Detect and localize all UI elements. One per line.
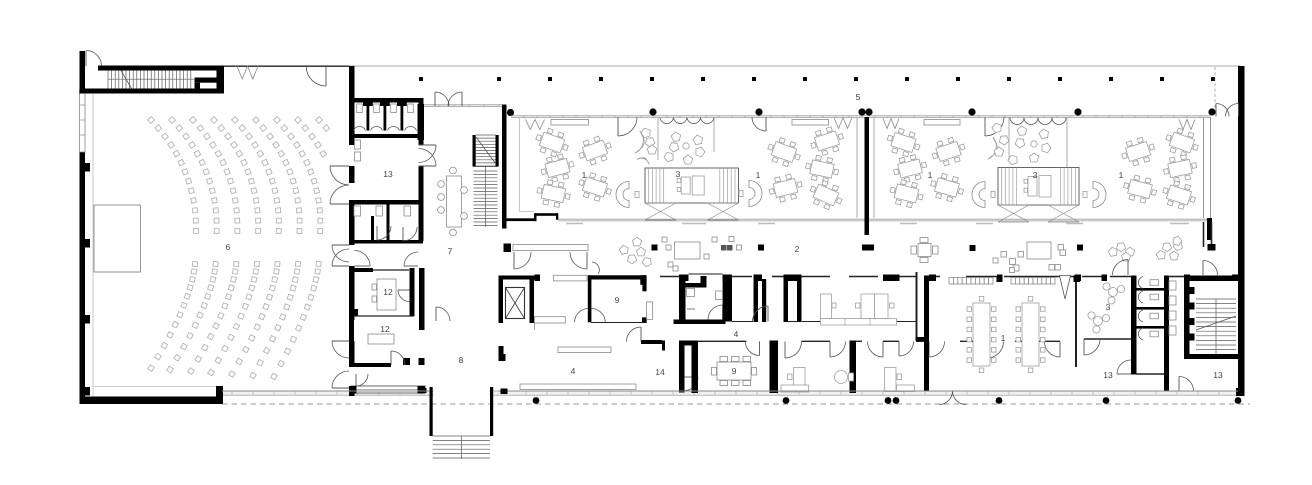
svg-text:8: 8 <box>459 355 464 365</box>
svg-text:6: 6 <box>226 242 231 252</box>
svg-text:3: 3 <box>1033 170 1038 180</box>
svg-text:14: 14 <box>655 367 665 377</box>
svg-text:7: 7 <box>448 246 453 256</box>
svg-text:4: 4 <box>571 366 576 376</box>
svg-text:1: 1 <box>928 170 933 180</box>
svg-text:4: 4 <box>734 329 739 339</box>
svg-text:13: 13 <box>1103 370 1113 380</box>
svg-text:1: 1 <box>582 170 587 180</box>
svg-text:9: 9 <box>615 295 620 305</box>
svg-text:5: 5 <box>856 92 861 102</box>
svg-text:2: 2 <box>795 244 800 254</box>
svg-text:12: 12 <box>383 287 393 297</box>
svg-text:3: 3 <box>676 169 681 179</box>
svg-text:12: 12 <box>380 324 390 334</box>
svg-text:1: 1 <box>1001 333 1006 343</box>
svg-text:13: 13 <box>1213 370 1223 380</box>
svg-text:13: 13 <box>383 169 393 179</box>
svg-text:9: 9 <box>732 366 737 376</box>
svg-text:1: 1 <box>1119 170 1124 180</box>
svg-text:1: 1 <box>756 170 761 180</box>
